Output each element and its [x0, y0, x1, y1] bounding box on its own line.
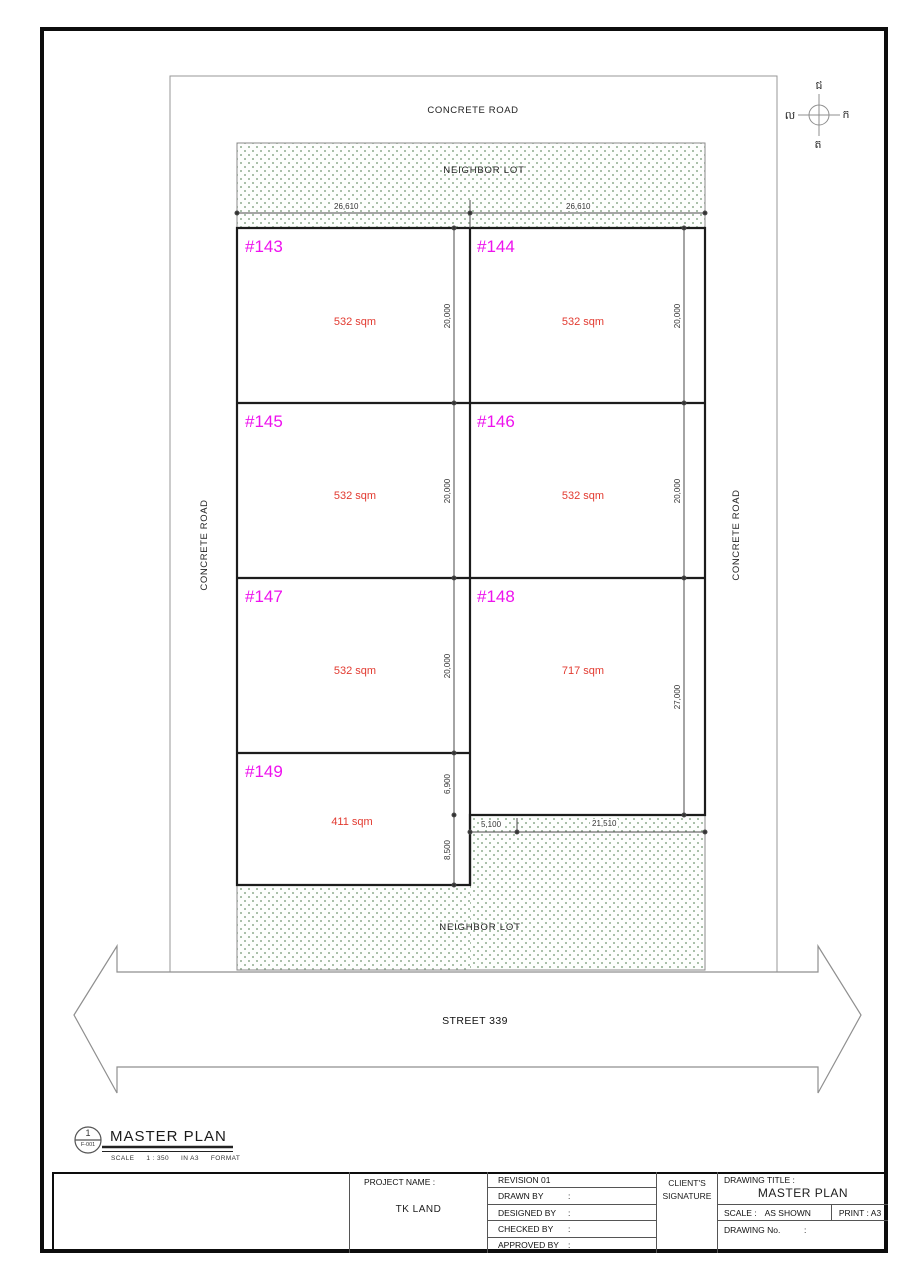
project-name-label: PROJECT NAME :: [350, 1172, 487, 1187]
compass-west-label: ល: [781, 109, 799, 125]
dim-149-height-lower: 8,500: [441, 825, 453, 875]
dim-top-left: 26,610: [332, 202, 360, 211]
scale-cell: SCALE : AS SHOWN: [718, 1205, 832, 1220]
neighbor-lot-top-label: NEIGHBOR LOT: [404, 165, 564, 176]
designed-by-row: DESIGNED BY :: [488, 1204, 656, 1220]
neighbor-lot-bottom-label: NEIGHBOR LOT: [400, 922, 560, 933]
callout-scale-value: 1 : 350: [146, 1155, 169, 1162]
lot-143-area: 532 sqm: [305, 316, 405, 328]
dim-147-height: 20,000: [441, 641, 453, 691]
lot-148-area: 717 sqm: [533, 665, 633, 677]
dim-146-height: 20,000: [671, 466, 683, 516]
drawn-by-colon: :: [568, 1191, 570, 1201]
callout-scale-line: SCALE 1 : 350 IN A3 FORMAT: [111, 1155, 240, 1162]
callout-number: 1: [76, 1128, 100, 1138]
client-signature-line2: SIGNATURE: [657, 1190, 717, 1203]
print-cell: PRINT : A3: [832, 1205, 888, 1220]
lot-144-label: #144: [477, 237, 515, 257]
revision-row: REVISION 01: [488, 1172, 656, 1187]
drawing-no-label: DRAWING No.: [724, 1225, 780, 1235]
drawn-by-row: DRAWN BY :: [488, 1187, 656, 1203]
lot-146-area: 532 sqm: [533, 490, 633, 502]
callout-format: FORMAT: [211, 1155, 240, 1162]
scale-label: SCALE :: [724, 1208, 757, 1218]
compass-north-label: ជ: [810, 79, 828, 95]
neighbor-lot-top-hatch: [237, 143, 705, 228]
checked-by-row: CHECKED BY :: [488, 1220, 656, 1236]
lot-146-label: #146: [477, 412, 515, 432]
callout-title: MASTER PLAN: [110, 1128, 227, 1145]
neighbor-lot-bottom-hatch-right: [470, 815, 705, 970]
lot-143-label: #143: [245, 237, 283, 257]
dim-top-right: 26,610: [564, 202, 592, 211]
road-label-left: CONCRETE ROAD: [198, 485, 210, 605]
drawing-title-label: DRAWING TITLE :: [718, 1172, 888, 1185]
dim-bottom-left: 5,100: [479, 820, 503, 829]
callout-sheet-code: F-001: [74, 1142, 102, 1148]
print-value: PRINT : A3: [839, 1208, 881, 1218]
lot-149-label: #149: [245, 762, 283, 782]
drawn-by-label: DRAWN BY: [498, 1191, 544, 1201]
title-block-drawing-cell: DRAWING TITLE : MASTER PLAN SCALE : AS S…: [717, 1172, 888, 1253]
drawing-no-row: DRAWING No. :: [718, 1221, 888, 1235]
callout-scale-label: SCALE: [111, 1155, 134, 1162]
lot-145-area: 532 sqm: [305, 490, 405, 502]
road-label-right: CONCRETE ROAD: [730, 475, 742, 595]
drawing-title-row: DRAWING TITLE : MASTER PLAN: [718, 1172, 888, 1205]
client-signature-line1: CLIENT'S: [657, 1177, 717, 1190]
road-label-top: CONCRETE ROAD: [393, 105, 553, 116]
designed-by-label: DESIGNED BY: [498, 1208, 556, 1218]
approved-by-label: APPROVED BY: [498, 1240, 559, 1250]
checked-by-label: CHECKED BY: [498, 1224, 553, 1234]
dim-144-height: 20,000: [671, 291, 683, 341]
lot-148-label: #148: [477, 587, 515, 607]
designed-by-colon: :: [568, 1208, 570, 1218]
title-block-client-cell: CLIENT'S SIGNATURE: [656, 1172, 717, 1253]
street-label: STREET 339: [395, 1015, 555, 1027]
drawing-sheet: CONCRETE ROAD CONCRETE ROAD CONCRETE ROA…: [0, 0, 904, 1280]
approved-by-row: APPROVED BY :: [488, 1237, 656, 1253]
dim-145-height: 20,000: [441, 466, 453, 516]
project-name-value: TK LAND: [350, 1204, 487, 1215]
scale-value: AS SHOWN: [765, 1208, 811, 1218]
compass-east-label: ក: [837, 108, 855, 124]
drawing-no-colon: :: [804, 1225, 806, 1235]
lot-147-area: 532 sqm: [305, 665, 405, 677]
approved-by-colon: :: [568, 1240, 570, 1250]
lot-149-area: 411 sqm: [302, 816, 402, 828]
title-block-revision-cell: REVISION 01 DRAWN BY : DESIGNED BY : CHE…: [487, 1172, 656, 1253]
checked-by-colon: :: [568, 1224, 570, 1234]
drawing-title-value: MASTER PLAN: [718, 1186, 888, 1200]
title-block-project-cell: PROJECT NAME : TK LAND: [349, 1172, 487, 1253]
scale-print-row: SCALE : AS SHOWN PRINT : A3: [718, 1205, 888, 1221]
dim-149-height-upper: 6,900: [441, 759, 453, 809]
dim-bottom-right: 21,510: [590, 819, 618, 828]
lot-145-label: #145: [245, 412, 283, 432]
compass-south-label: ត: [809, 138, 827, 154]
lot-144-area: 532 sqm: [533, 316, 633, 328]
revision-label: REVISION 01: [498, 1175, 550, 1185]
callout-paper: IN A3: [181, 1155, 199, 1162]
lot-147-label: #147: [245, 587, 283, 607]
dim-143-height: 20,000: [441, 291, 453, 341]
dim-148-height: 27,000: [671, 672, 683, 722]
